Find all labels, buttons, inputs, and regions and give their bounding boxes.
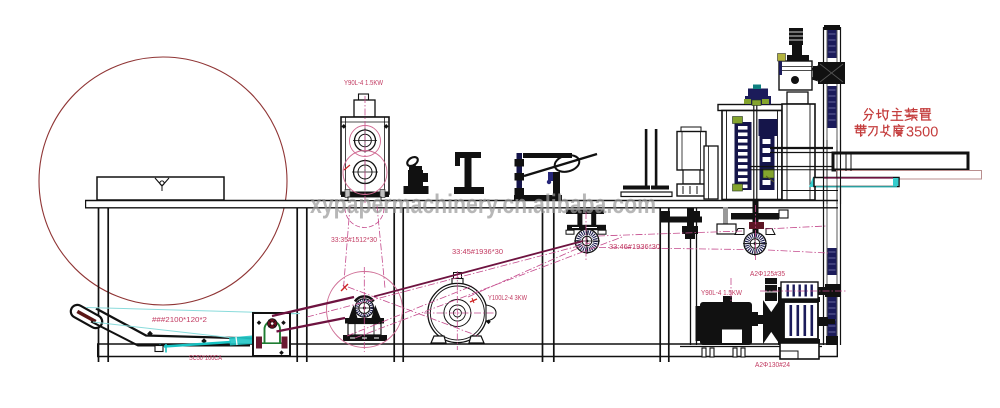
svg-text:###2100*120*2: ###2100*120*2 bbox=[152, 315, 207, 324]
svg-text:33:45#1936*30: 33:45#1936*30 bbox=[452, 247, 503, 256]
svg-text:SC50*100CA: SC50*100CA bbox=[189, 353, 222, 362]
svg-text:A2Φ125#35: A2Φ125#35 bbox=[750, 269, 785, 278]
svg-text:Y100L2-4 3KW: Y100L2-4 3KW bbox=[488, 293, 527, 302]
svg-text:3500: 3500 bbox=[906, 125, 938, 141]
svg-text:A2Φ130#24: A2Φ130#24 bbox=[755, 360, 790, 369]
svg-text:Y90L-4 1.5KW: Y90L-4 1.5KW bbox=[701, 288, 742, 297]
svg-text:Y90L-4 1.5KW: Y90L-4 1.5KW bbox=[344, 78, 383, 87]
svg-text:xypapermachinery.cn.alibaba.co: xypapermachinery.cn.alibaba.com bbox=[310, 189, 656, 219]
svg-text:33:46#1936*30: 33:46#1936*30 bbox=[609, 242, 660, 251]
svg-text:33:35#1512*30: 33:35#1512*30 bbox=[331, 235, 377, 244]
